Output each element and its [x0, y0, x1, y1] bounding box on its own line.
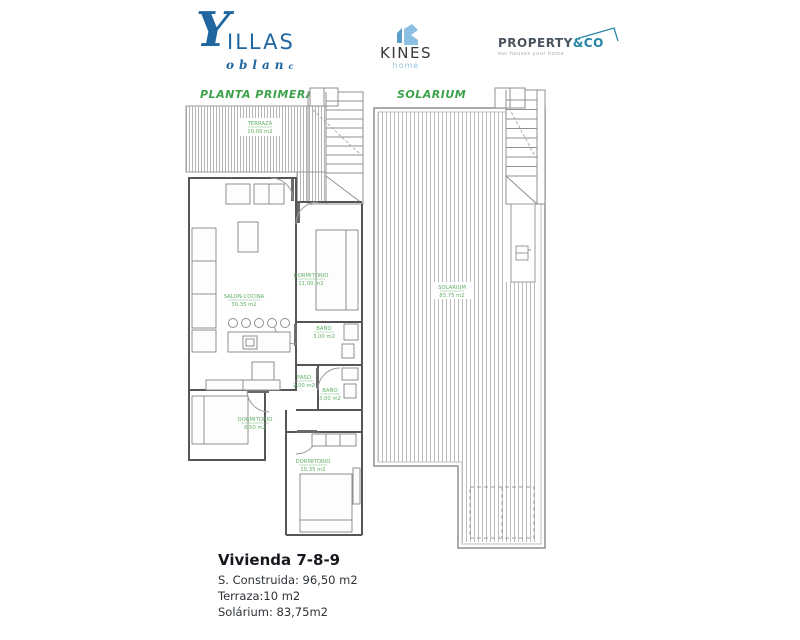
floorplan-flyer: Y ILLAS oblanc KINES home PROPERTY&CO ou… [0, 0, 800, 640]
paso-area: 2,00 m2 [293, 383, 315, 389]
bano1-area: 3,00 m2 [313, 334, 335, 340]
room-labels-right: SOLARIUM 83,75 m2 [431, 282, 473, 299]
solarium-plan: SOLARIUM 83,75 m2 [374, 88, 545, 548]
bano2-area: 3,00 m2 [319, 396, 341, 402]
terraza-line: Terraza:10 m2 [218, 588, 358, 604]
paso-label: PASO [297, 375, 311, 381]
dormitorio2-label: DORMITORIO [238, 417, 273, 423]
solarium-label: SOLARIUM [438, 285, 466, 291]
dwelling-title: Vivienda 7-8-9 [218, 551, 358, 569]
solarium-service-box [511, 204, 535, 282]
bedroom-bathroom-furniture [192, 230, 360, 532]
solarium-line: Solárium: 83,75m2 [218, 604, 358, 620]
built-surface-line: S. Construida: 96,50 m2 [218, 572, 358, 588]
floorplan-drawing: TERRAZA 10,00 m2 SALON-COCINA 30,35 m2 D… [0, 0, 800, 640]
terraza-area: 10,00 m2 [247, 129, 272, 135]
dormitorio3-label: DORMITORIO [296, 459, 331, 465]
staircase-left-plan [308, 88, 363, 204]
bano1-label: BAÑO [316, 325, 331, 332]
dormitorio2-area: 8,50 m2 [244, 425, 266, 431]
salon-cocina-area: 30,35 m2 [231, 302, 256, 308]
door-leaves [247, 179, 319, 433]
bano2-label: BAÑO [322, 387, 337, 394]
planta-primera-plan: TERRAZA 10,00 m2 SALON-COCINA 30,35 m2 D… [186, 88, 363, 535]
dormitorio3-area: 10,35 m2 [300, 467, 325, 473]
solarium-pergola-dashed [470, 487, 534, 538]
solarium-area: 83,75 m2 [439, 293, 464, 299]
staircase-solarium [495, 88, 545, 204]
living-room-furniture [192, 184, 290, 388]
door-arcs [247, 178, 340, 454]
dormitorio1-area: 11,00 m2 [298, 281, 323, 287]
terraza-label: TERRAZA [247, 121, 273, 127]
dormitorio1-label: DORMITORIO [294, 273, 329, 279]
dwelling-summary: Vivienda 7-8-9 S. Construida: 96,50 m2 T… [218, 551, 358, 620]
salon-cocina-label: SALON-COCINA [224, 294, 265, 300]
